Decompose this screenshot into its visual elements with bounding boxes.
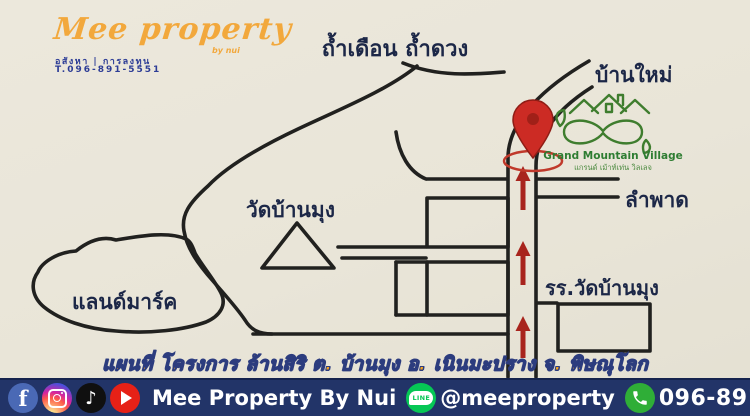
grid-corner-curve <box>396 132 426 179</box>
contact-footer-bar: f ♪ Mee Property By Nui LINE @meepropert… <box>0 378 750 416</box>
label-landmark: แลนด์มาร์ค <box>72 286 177 319</box>
tiktok-note-glyph: ♪ <box>85 388 97 409</box>
village-logo-name-th: แกรนด์ เม้าท์เท่น วิลเลจ <box>538 162 688 174</box>
facebook-glyph: f <box>18 386 27 411</box>
house-door <box>606 104 612 112</box>
village-logo-name-en: Grand Mountain Village <box>538 150 688 162</box>
instagram-camera-glyph <box>48 389 67 408</box>
footer-brand-text: Mee Property By Nui <box>152 386 396 410</box>
label-wat-ban-mung: วัดบ้านมุง <box>246 194 335 227</box>
footer-phone-text: 096-891-5551 <box>659 386 750 411</box>
line-icon: LINE <box>406 383 436 413</box>
infinity-swirl <box>564 121 642 144</box>
temple-triangle <box>262 223 334 268</box>
youtube-icon <box>110 383 140 413</box>
map-caption: แผนที่ โครงการ ล้านสิริ ต. บ้านมุง อ. เน… <box>0 349 750 379</box>
youtube-play-glyph <box>121 391 132 405</box>
city-block-a <box>427 198 508 247</box>
brand-logo-sub: by nui <box>212 46 240 55</box>
house-roof-left <box>570 100 598 113</box>
city-block-b <box>427 262 508 315</box>
facebook-icon: f <box>8 383 38 413</box>
phone-icon <box>625 383 655 413</box>
line-bubble-glyph: LINE <box>409 391 433 405</box>
direction-arrows <box>516 166 531 358</box>
label-school: รร.วัดบ้านมุง <box>545 272 659 304</box>
up-arrow-icon <box>516 241 531 285</box>
tiktok-icon: ♪ <box>76 383 106 413</box>
school-rect <box>558 304 650 351</box>
up-arrow-icon <box>516 166 531 210</box>
brand-phone: T.096-891-5551 <box>55 65 161 75</box>
label-caves: ถ้ำเดือน ถ้ำดวง <box>300 31 490 66</box>
phone-handset-glyph <box>631 389 649 407</box>
line-id-text: @meeproperty <box>440 386 615 410</box>
label-lam-phat: ลำพาด <box>625 184 689 217</box>
label-ban-mai: บ้านใหม่ <box>595 59 672 92</box>
brand-logo-script: Mee property <box>52 12 293 47</box>
instagram-icon <box>42 383 72 413</box>
